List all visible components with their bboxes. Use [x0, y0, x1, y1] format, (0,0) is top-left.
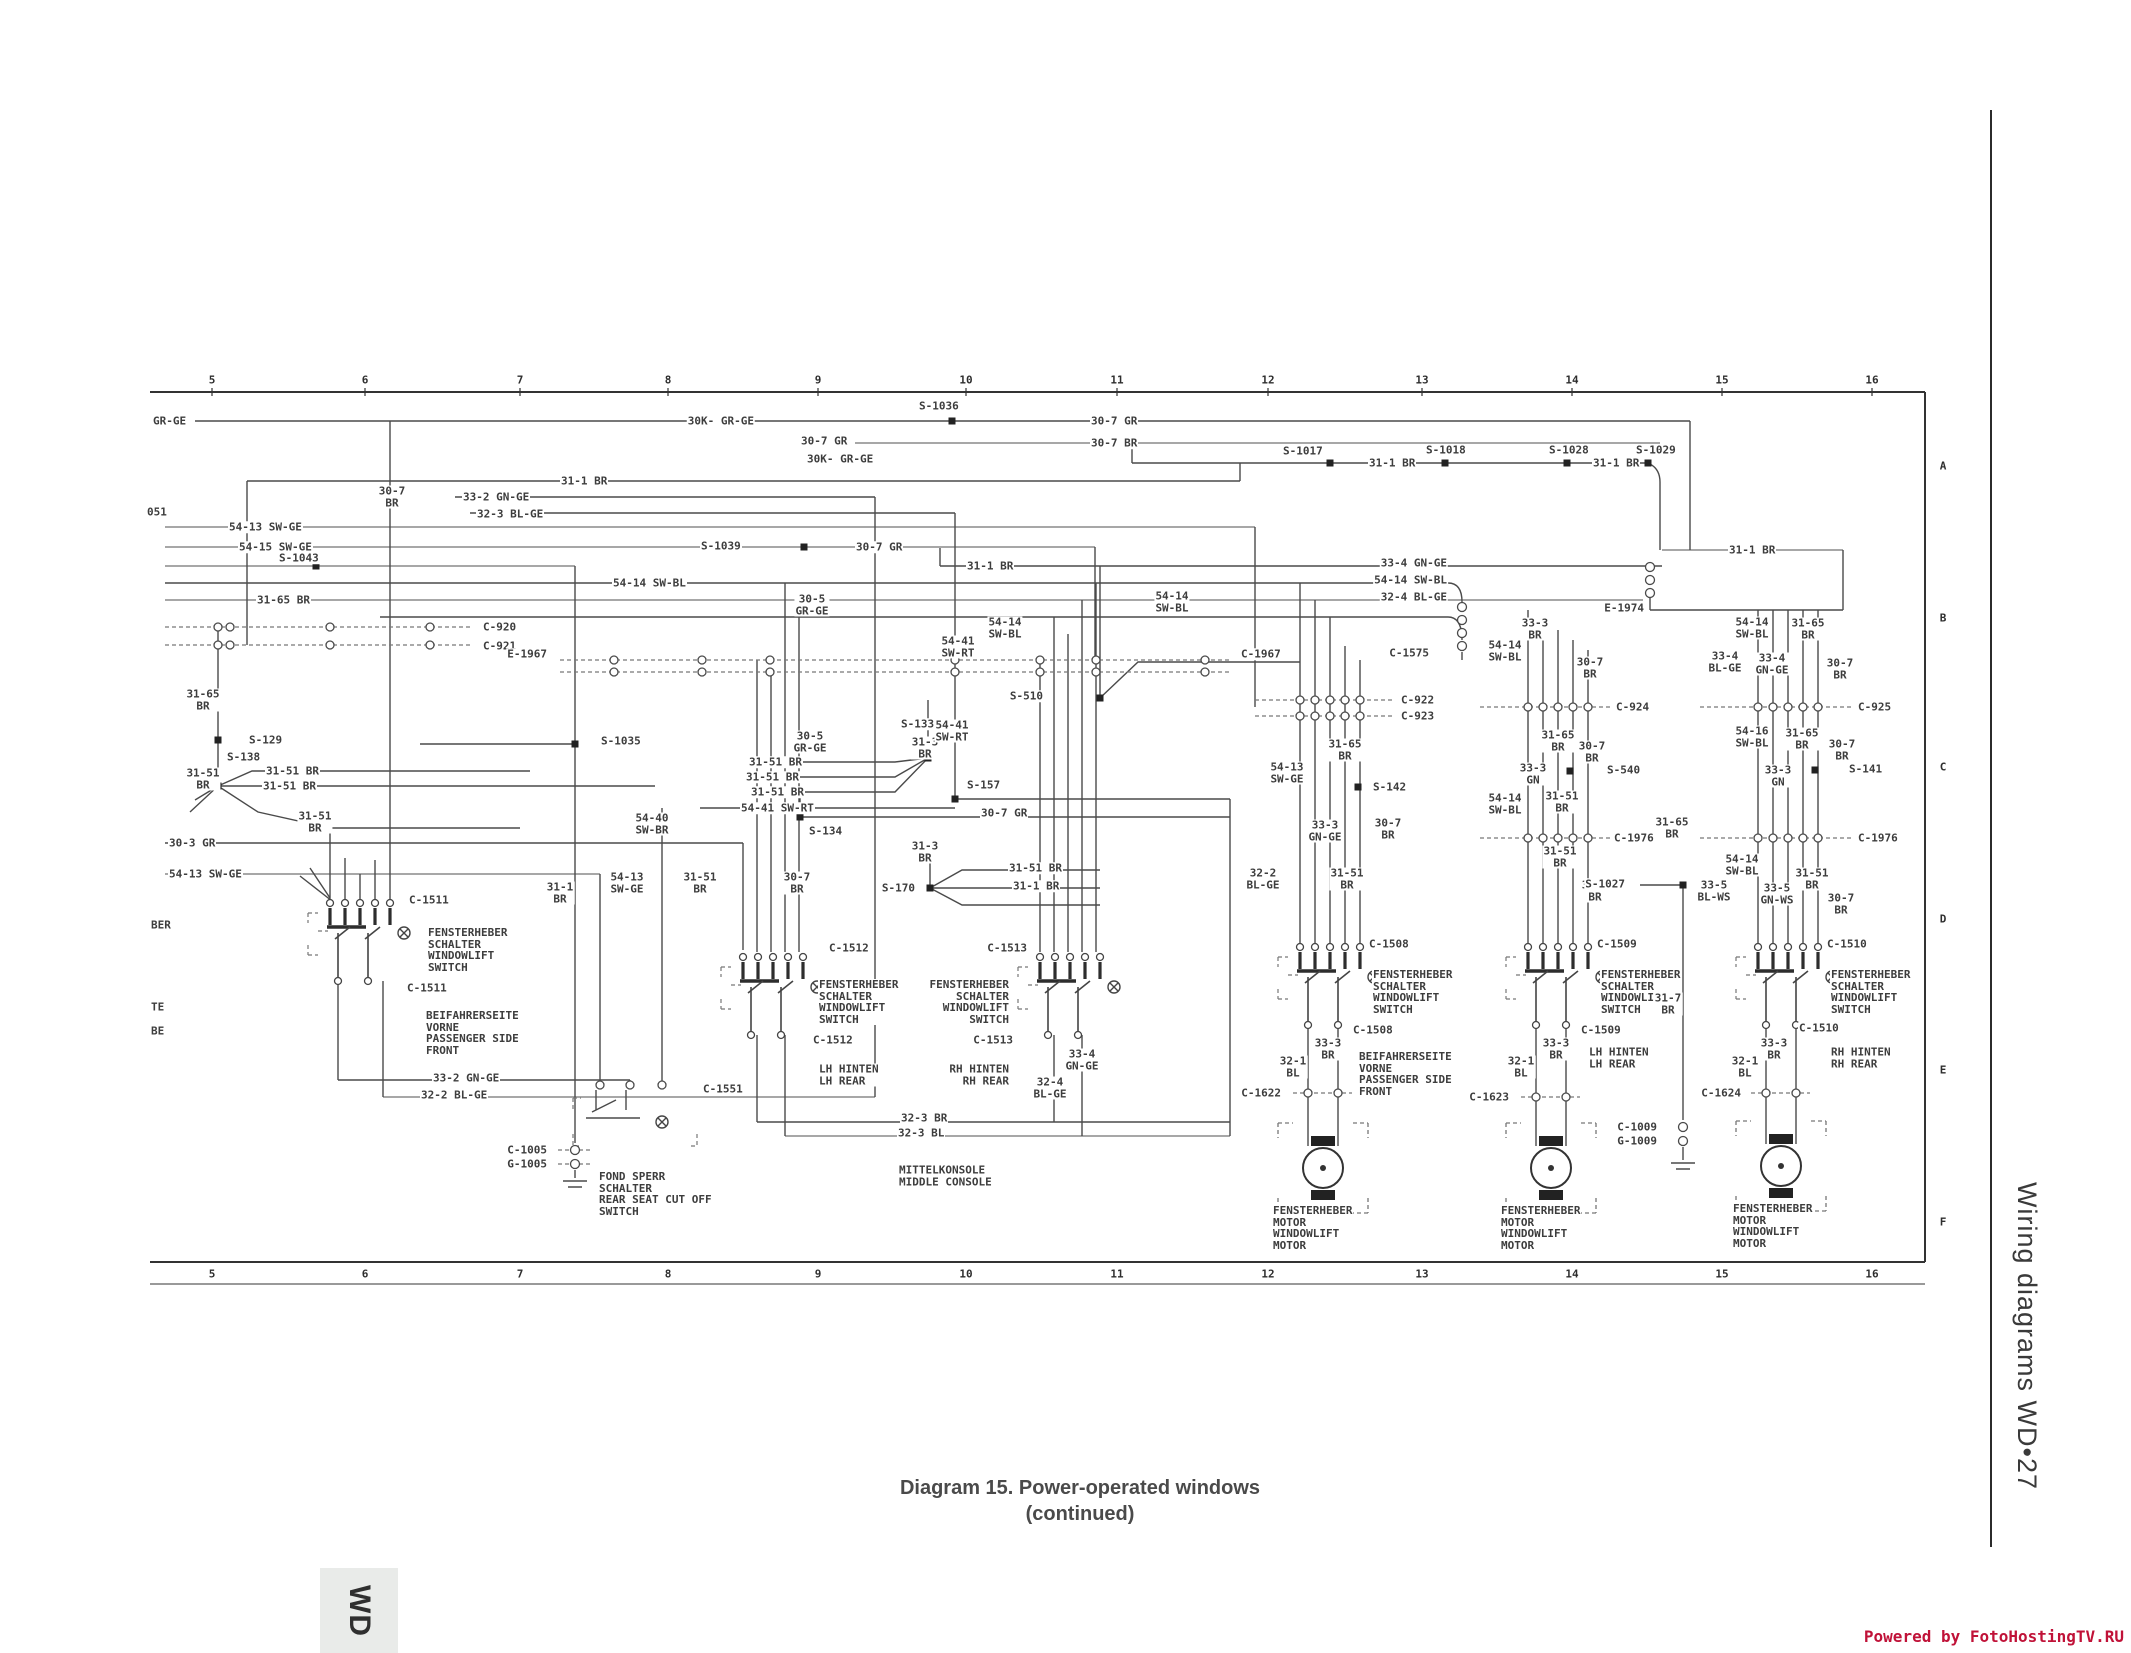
- wire-lines: [165, 421, 1843, 1187]
- wiring-diagram-svg: [0, 0, 2131, 1653]
- sidebar-title: Wiring diagrams WD•27: [1996, 1182, 2042, 1548]
- wiring-diagram-page: GR-GE30K- GR-GES-103630-7 GR30K- GR-GE30…: [0, 0, 2131, 1653]
- section-tab: WD: [320, 1568, 398, 1653]
- wire-lines-light: [165, 443, 1843, 1136]
- switch-passenger-front: [308, 900, 410, 985]
- switch-lh-rear-2: [1506, 944, 1608, 1029]
- connector-pins: [214, 563, 1822, 1169]
- switch-lh-rear: [721, 954, 823, 1039]
- junction-dots: [215, 418, 1819, 892]
- sidebar-rule: [1990, 110, 1992, 1547]
- rear-seat-cutoff-switch-symbol: [656, 1116, 668, 1128]
- switch-rh-rear: [1018, 954, 1120, 1039]
- motor-lh-rear: [1506, 1123, 1596, 1213]
- diagram-caption: Diagram 15. Power-operated windows (cont…: [670, 1475, 1490, 1527]
- diagram-frame: [150, 388, 1925, 1284]
- caption-line-1: Diagram 15. Power-operated windows: [670, 1475, 1490, 1501]
- section-tab-label: WD: [342, 1585, 376, 1637]
- motor-rh-rear: [1736, 1121, 1826, 1211]
- footer-credit-link[interactable]: Powered by FotoHostingTV.RU: [1864, 1627, 2124, 1647]
- switch-passenger-front-2: [1278, 944, 1380, 1029]
- switch-rh-rear-2: [1736, 944, 1838, 1029]
- dashed-connector-lines: [165, 627, 1852, 1164]
- motor-passenger-front: [1278, 1123, 1368, 1213]
- caption-line-2: (continued): [670, 1501, 1490, 1527]
